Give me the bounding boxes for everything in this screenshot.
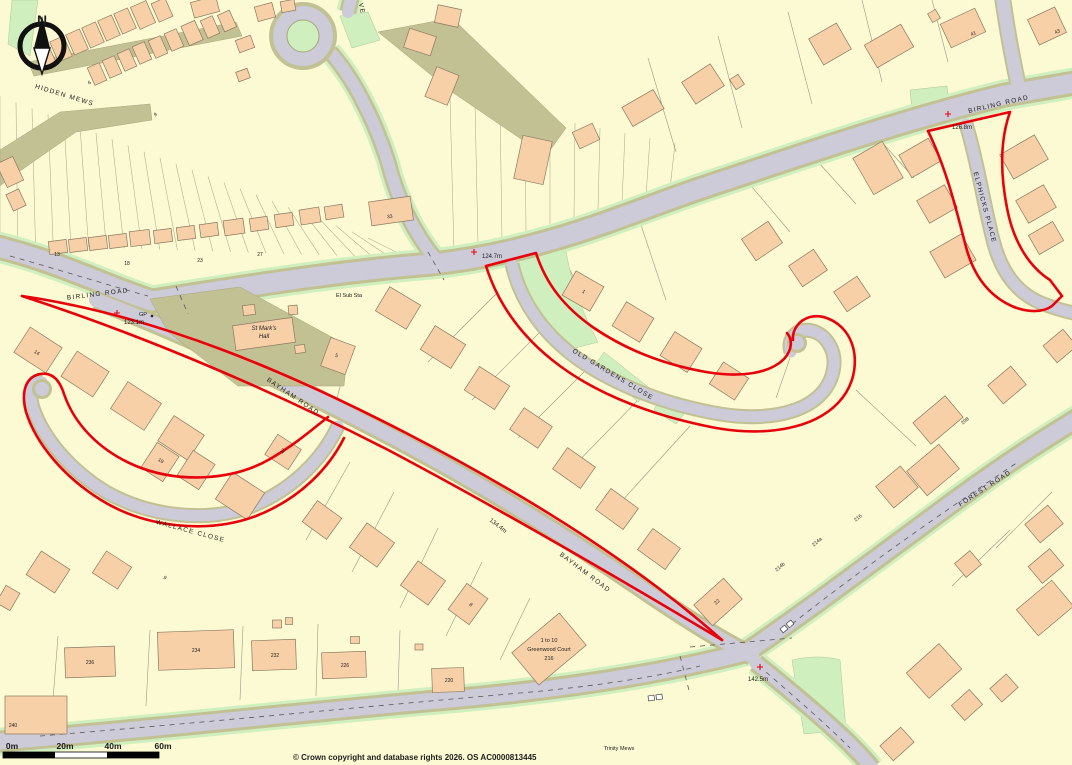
wallace-head bbox=[35, 382, 49, 396]
scale-bar-seg2 bbox=[107, 752, 159, 758]
building bbox=[108, 233, 127, 248]
house-number: 23 bbox=[197, 258, 203, 264]
building bbox=[68, 237, 87, 252]
roundabout-island bbox=[287, 20, 319, 52]
building bbox=[88, 235, 107, 250]
building bbox=[415, 644, 423, 650]
house-number: 226 bbox=[341, 663, 350, 669]
scale-label-0: 0m bbox=[6, 741, 19, 751]
house-number: 27 bbox=[257, 252, 263, 258]
building bbox=[274, 212, 294, 227]
map-svg: HIDDEN MEWS BIRLING ROAD BIRLING ROAD BA… bbox=[0, 0, 1072, 765]
building bbox=[286, 618, 293, 625]
building bbox=[129, 229, 151, 246]
building bbox=[288, 305, 298, 315]
label-st-marks-hall: Hall bbox=[259, 334, 270, 340]
building bbox=[223, 218, 245, 236]
scale-label-20: 20m bbox=[56, 741, 73, 751]
symbol-box bbox=[648, 695, 655, 701]
gp-dot bbox=[151, 315, 154, 318]
label-greenwood-range: 1 to 10 bbox=[541, 638, 558, 644]
building bbox=[199, 222, 219, 237]
label-greenwood-number: 216 bbox=[544, 656, 553, 662]
scale-label-60: 60m bbox=[154, 741, 171, 751]
building bbox=[176, 225, 195, 240]
building bbox=[324, 204, 344, 220]
house-number: 234 bbox=[192, 648, 201, 654]
roundabout bbox=[269, 2, 337, 70]
building bbox=[280, 0, 296, 13]
copyright-notice: © Crown copyright and database rights 20… bbox=[293, 753, 537, 762]
scale-label-40: 40m bbox=[104, 741, 121, 751]
building bbox=[299, 207, 321, 225]
building bbox=[249, 216, 269, 231]
house-number: 240 bbox=[9, 723, 18, 729]
label-trinity-mews: Trinity Mews bbox=[604, 746, 635, 752]
house-number: 13 bbox=[54, 252, 60, 258]
spot-height-142: 142.5m bbox=[748, 677, 768, 683]
house-number: 33 bbox=[387, 214, 394, 221]
symbol-box bbox=[656, 694, 663, 700]
label-gp: GP bbox=[139, 312, 147, 318]
north-label: N bbox=[37, 12, 47, 28]
spot-height-123: 123.1m bbox=[124, 320, 144, 326]
house-number: 236 bbox=[86, 660, 95, 666]
map-canvas: HIDDEN MEWS BIRLING ROAD BIRLING ROAD BA… bbox=[0, 0, 1072, 765]
label-greenwood-court: Greenwood Court bbox=[527, 647, 571, 653]
house-number: 220 bbox=[445, 678, 454, 684]
spot-height-124: 124.7m bbox=[482, 254, 502, 260]
building bbox=[351, 637, 360, 644]
house-number: 18 bbox=[124, 261, 130, 267]
spot-height-126: 126.8m bbox=[952, 125, 972, 131]
scale-bar-seg1 bbox=[3, 752, 55, 758]
label-st-marks: St Mark's bbox=[252, 326, 277, 332]
house-number: 232 bbox=[271, 653, 280, 659]
label-el-sub-sta: El Sub Sta bbox=[336, 293, 363, 299]
building bbox=[273, 620, 282, 628]
building bbox=[153, 228, 172, 243]
building bbox=[243, 304, 256, 315]
building bbox=[294, 344, 305, 353]
